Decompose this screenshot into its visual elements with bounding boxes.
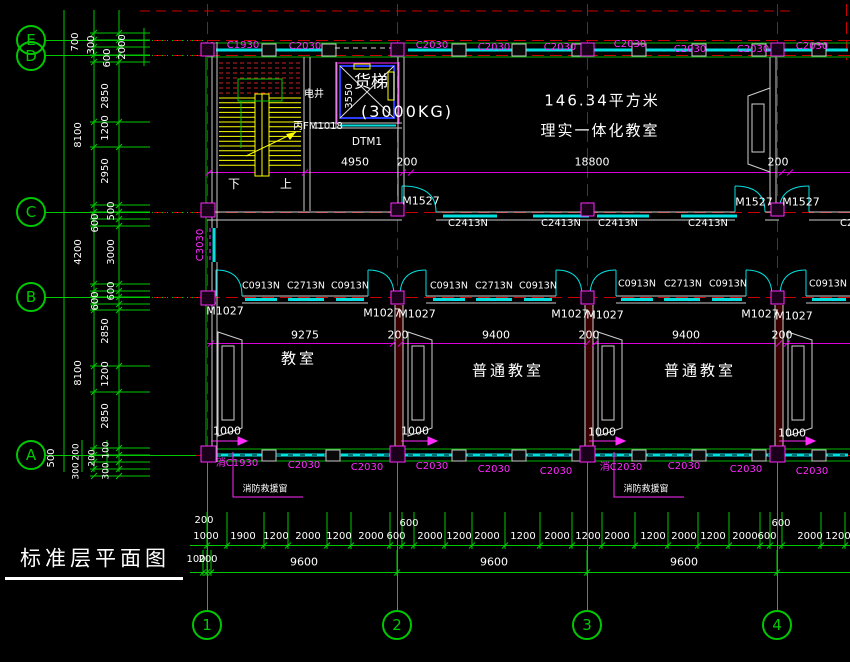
top-windows-label: C2030 xyxy=(478,43,510,53)
bottom-chain-label: 2000 xyxy=(604,532,629,542)
door-dims-label: 1000 xyxy=(401,426,429,437)
bottom-chain-label: 1200 xyxy=(640,532,665,542)
row-c-doors-label: M1527 xyxy=(782,197,820,208)
bottom-windows-label: 消C2030 xyxy=(600,463,642,473)
bottom-windows-label: 消C1930 xyxy=(216,459,258,469)
bottom-chain-label: 200 xyxy=(194,516,213,526)
fire-window-note-1: 消防救援窗 xyxy=(242,486,287,495)
bottom-windows-label: C2030 xyxy=(288,461,320,471)
row-b-windows-label: C2713N xyxy=(664,279,702,289)
bottom-totals-label: 9600 xyxy=(480,557,508,568)
bottom-chain-label: 1200 xyxy=(575,532,600,542)
room-label-classroom: 教室 xyxy=(281,352,317,367)
title-underline xyxy=(5,577,183,580)
mid-dims-label: 18800 xyxy=(575,157,610,168)
left-dims-label: 2950 xyxy=(101,158,111,183)
left-dims-label: 4200 xyxy=(74,239,84,264)
room-dims-label: 200 xyxy=(579,330,600,341)
left-dims-label: 700 xyxy=(71,32,81,51)
shaft-label: 电井 xyxy=(304,90,324,100)
bottom-chain-label: 600 xyxy=(386,532,405,542)
left-dims-label: 1200 xyxy=(101,361,111,386)
red-grid-lines xyxy=(46,4,850,463)
bottom-chain-label: 1900 xyxy=(230,532,255,542)
bottom-windows-label: C2030 xyxy=(796,467,828,477)
left-dims-label: 2850 xyxy=(101,83,111,108)
row-c-windows-label: C2413N xyxy=(598,219,638,229)
bottom-chain-label: 1200 xyxy=(446,532,471,542)
room-dims-label: 9400 xyxy=(672,330,700,341)
grid-bubble-col-4: 4 xyxy=(762,610,792,640)
bottom-chain-label: 2000 xyxy=(732,532,757,542)
left-dims-label: 600 xyxy=(107,281,117,300)
row-b-doors-label: M1027 xyxy=(551,309,589,320)
row-b-windows-label: C0913N xyxy=(809,279,847,289)
grid-bubble-col-3: 3 xyxy=(572,610,602,640)
bottom-chain-label: 2000 xyxy=(474,532,499,542)
mid-dims-label: 4950 xyxy=(341,157,369,168)
left-dims-label: 300 xyxy=(73,462,82,479)
mid-dims-label: 200 xyxy=(397,157,418,168)
row-b-windows-label: C0913N xyxy=(709,279,747,289)
grid-bubble-row-d: D xyxy=(16,41,46,71)
room-area-label: 146.34平方米 xyxy=(544,94,660,109)
room-dims-label: 9275 xyxy=(291,330,319,341)
page-title: 标准层平面图 xyxy=(20,549,170,570)
row-b-doors-label: M1027 xyxy=(398,309,436,320)
row-b-doors-label: M1027 xyxy=(775,311,813,322)
stair-down-label: 下 xyxy=(228,178,240,190)
bottom-windows-label: C2030 xyxy=(478,465,510,475)
grid-bubble-row-a: A xyxy=(16,440,46,470)
left-dims-label: 8100 xyxy=(74,122,84,147)
left-dims-label: 2850 xyxy=(101,403,111,428)
top-windows-label: C2030 xyxy=(737,45,769,55)
bottom-totals-label: 9600 xyxy=(670,557,698,568)
row-c-windows-label: C2413N xyxy=(541,219,581,229)
bottom-chain-label: 2000 xyxy=(417,532,442,542)
row-c-windows-label: C2413N xyxy=(688,219,728,229)
fire-window-note-2: 消防救援窗 xyxy=(623,486,668,495)
left-dims-label: 500 xyxy=(107,201,117,220)
bottom-chain-label: 1200 xyxy=(825,532,850,542)
bottom-windows-label: C2030 xyxy=(351,463,383,473)
misc-label: C3030 xyxy=(196,229,206,261)
row-b-windows-label: C0913N xyxy=(331,281,369,291)
grid-bubble-col-1: 1 xyxy=(192,610,222,640)
room-label-ordinary-classroom-1: 普通教室 xyxy=(472,364,544,379)
room-dims-label: 200 xyxy=(388,330,409,341)
top-windows-label: C2030 xyxy=(796,42,828,52)
top-windows-label: C2030 xyxy=(416,41,448,51)
bottom-chain-label: 1000 xyxy=(193,532,218,542)
room-dims-label: 200 xyxy=(772,330,793,341)
elevator-code-label: DTM1 xyxy=(352,137,382,148)
bottom-chain-label: 1200 xyxy=(326,532,351,542)
bottom-chain-label: 2000 xyxy=(544,532,569,542)
floor-plan-canvas: 标准层平面图 E D C B A 1 2 3 4 146.34平方米 理实一体化… xyxy=(0,0,850,662)
bottom-chain-label: 2000 xyxy=(295,532,320,542)
row-b-windows-label: C2713N xyxy=(287,281,325,291)
row-c-doors-label: M1527 xyxy=(735,197,773,208)
top-windows-label: C1930 xyxy=(227,41,259,51)
stair xyxy=(219,63,301,176)
left-dims-label: 2000 xyxy=(118,34,128,59)
door-dims-label: 1000 xyxy=(213,426,241,437)
left-dims-label: 600 xyxy=(91,213,101,232)
row-c-windows-label: C2413N xyxy=(448,219,488,229)
left-dims-label: 600 xyxy=(103,48,113,67)
left-dims-label: 300 xyxy=(87,35,97,54)
row-b-windows-label: C0913N xyxy=(519,281,557,291)
room-dims-label: 9400 xyxy=(482,330,510,341)
bottom-chain-label: 2000 xyxy=(671,532,696,542)
left-dims-label: 200 xyxy=(73,443,82,460)
row-b-windows-label: C0913N xyxy=(430,281,468,291)
bottom-windows-label: C2030 xyxy=(540,467,572,477)
row-b-doors-label: M1027 xyxy=(363,308,401,319)
bottom-chain-label: 1200 xyxy=(700,532,725,542)
bottom-chain-label: 1200 xyxy=(510,532,535,542)
building-walls xyxy=(201,42,850,462)
row-b-doors-label: M1027 xyxy=(741,309,779,320)
bottom-totals-label: 200 xyxy=(198,555,217,565)
mid-dims-label: 200 xyxy=(768,157,789,168)
left-dims-label: 500 xyxy=(47,448,57,467)
row-b-windows-label: C0913N xyxy=(618,279,656,289)
bottom-chain-label: 2000 xyxy=(358,532,383,542)
misc-label: 3550 xyxy=(345,83,355,108)
left-dims-label: 1200 xyxy=(101,115,111,140)
row-b-windows-label: C0913N xyxy=(242,281,280,291)
room-label-ordinary-classroom-2: 普通教室 xyxy=(664,364,736,379)
room-label-integrated-classroom: 理实一体化教室 xyxy=(540,124,659,139)
door-dims-label: 1000 xyxy=(588,427,616,438)
row-b-windows-label: C2713N xyxy=(475,281,513,291)
shaft-door-label: 丙FM1018 xyxy=(293,122,343,132)
top-windows-label: C2030 xyxy=(674,45,706,55)
elevator-label: 货梯 xyxy=(354,75,388,92)
grid-bubble-row-b: B xyxy=(16,282,46,312)
left-dims-label: 3000 xyxy=(107,239,117,264)
top-windows-label: C2030 xyxy=(544,43,576,53)
bottom-totals-label: 9600 xyxy=(290,557,318,568)
podium-shapes xyxy=(218,88,812,436)
left-dims-label: 8100 xyxy=(74,360,84,385)
bottom-windows-label: C2030 xyxy=(668,462,700,472)
row-c-windows-label: C2413N xyxy=(840,219,850,229)
row-b-doors-label: M1027 xyxy=(586,310,624,321)
grid-bubble-col-2: 2 xyxy=(382,610,412,640)
bottom-windows-label: C2030 xyxy=(730,465,762,475)
door-dims-label: 1000 xyxy=(778,428,806,439)
bottom-chain-label: 1200 xyxy=(263,532,288,542)
grid-bubble-row-c: C xyxy=(16,197,46,227)
top-windows-label: C2030 xyxy=(614,40,646,50)
top-windows-label: C2030 xyxy=(289,42,321,52)
elevator-capacity-label: (3000KG) xyxy=(361,104,453,120)
left-dims-label: 100 xyxy=(103,441,112,458)
left-dims-label: 200 xyxy=(89,449,98,466)
left-dims-label: 2850 xyxy=(101,318,111,343)
bottom-chain-label: 600 xyxy=(757,532,776,542)
bottom-chain-label: 600 xyxy=(399,519,418,529)
left-dims-label: 300 xyxy=(103,462,112,479)
stair-up-label: 上 xyxy=(280,178,292,190)
bottom-windows-label: C2030 xyxy=(416,462,448,472)
bottom-chain-label: 2000 xyxy=(797,532,822,542)
left-dims-label: 600 xyxy=(91,291,101,310)
bottom-chain-label: 600 xyxy=(771,519,790,529)
row-c-doors-label: M1527 xyxy=(402,196,440,207)
row-b-doors-label: M1027 xyxy=(206,306,244,317)
